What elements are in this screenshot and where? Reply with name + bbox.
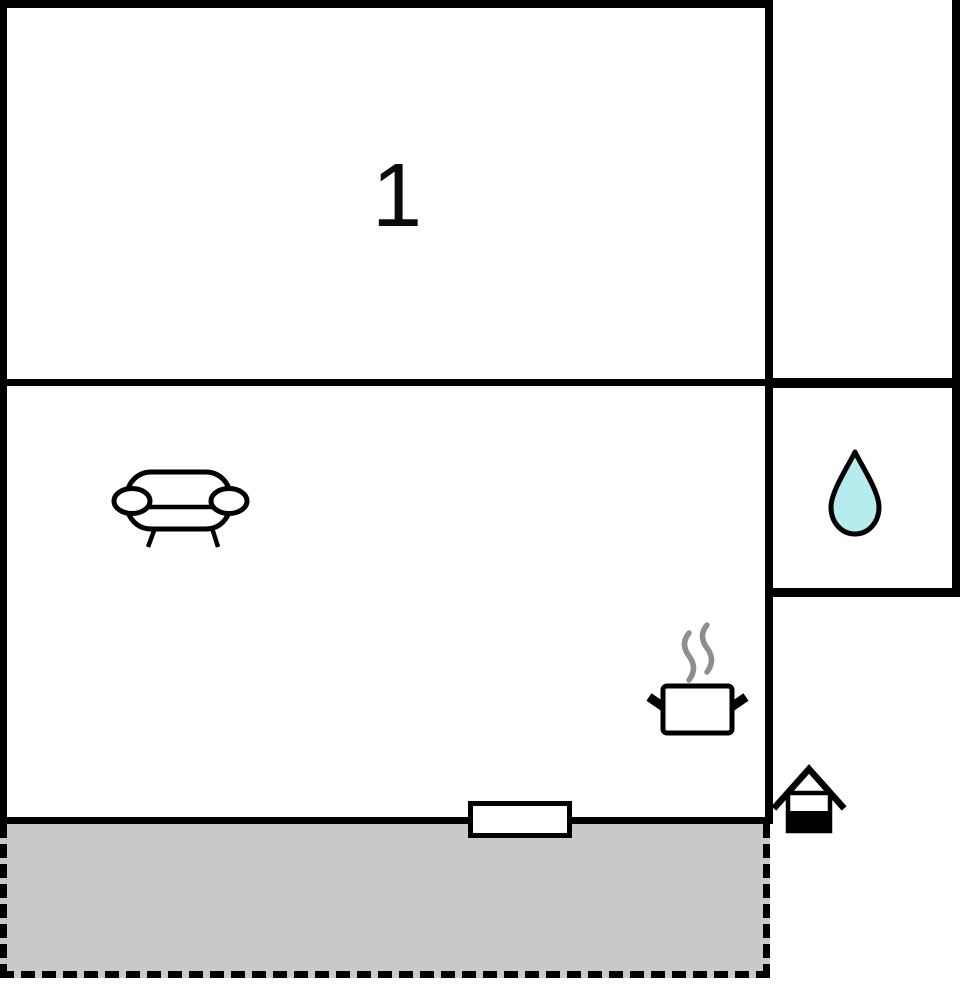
wall-bathroom-top bbox=[765, 378, 960, 388]
wall-bottom bbox=[0, 817, 773, 824]
water-drop-shape bbox=[831, 452, 879, 534]
room-number-label: 1 bbox=[347, 150, 447, 242]
window-marker bbox=[468, 801, 572, 838]
wall-center-right bbox=[765, 0, 773, 824]
wall-top bbox=[0, 0, 772, 8]
pot-body bbox=[663, 686, 732, 733]
entrance-house-icon bbox=[772, 760, 847, 834]
wall-left bbox=[0, 0, 7, 824]
floorplan-canvas: 1 bbox=[0, 0, 960, 985]
steam-line-left bbox=[685, 633, 694, 680]
cooking-pot-icon bbox=[640, 612, 755, 740]
sofa-armrest-right bbox=[211, 489, 247, 514]
wall-right-edge bbox=[952, 0, 960, 597]
water-drop-icon bbox=[825, 447, 885, 537]
room-living bbox=[7, 386, 765, 817]
sofa-leg-right bbox=[212, 528, 218, 547]
wall-room-divider bbox=[0, 379, 772, 386]
sofa-armrest-left bbox=[114, 489, 150, 514]
house-door-fill bbox=[788, 811, 830, 831]
sofa-icon bbox=[105, 465, 255, 555]
wall-bathroom-bottom bbox=[765, 588, 960, 597]
steam-line-right bbox=[703, 625, 712, 672]
terrace-area bbox=[0, 824, 770, 978]
